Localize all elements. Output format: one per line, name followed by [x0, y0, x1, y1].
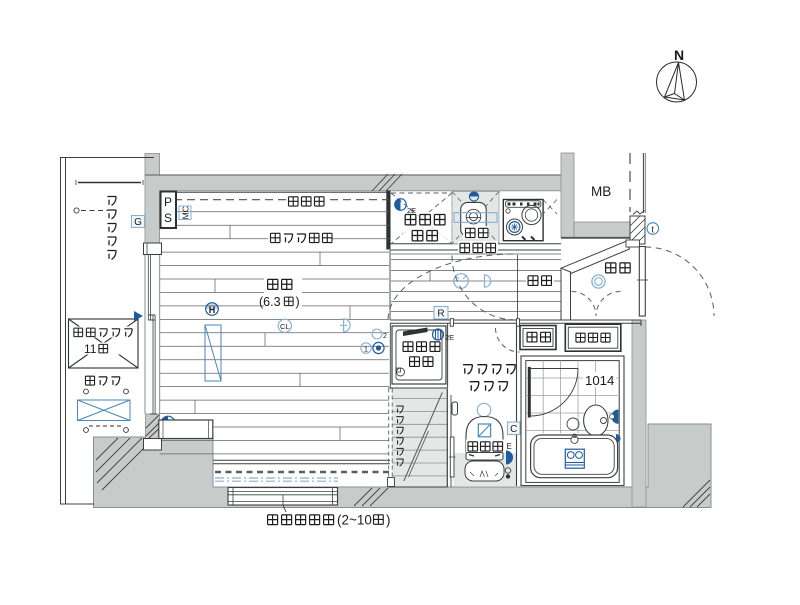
- svg-text:1: 1: [364, 345, 368, 354]
- svg-text:S: S: [164, 211, 172, 225]
- svg-text:C: C: [510, 424, 517, 435]
- svg-text:): ): [386, 513, 391, 528]
- svg-text:1014: 1014: [585, 373, 614, 388]
- svg-text:(6.3: (6.3: [259, 295, 281, 309]
- svg-text:): ): [296, 295, 300, 309]
- svg-text:MB: MB: [591, 184, 611, 199]
- svg-text:11: 11: [84, 342, 97, 356]
- svg-text:P: P: [164, 195, 172, 209]
- svg-text:G: G: [134, 217, 142, 228]
- svg-text:E: E: [507, 442, 512, 451]
- svg-text:N: N: [674, 47, 684, 63]
- svg-text:2E: 2E: [407, 206, 416, 215]
- svg-text:2: 2: [383, 333, 387, 340]
- svg-text:R: R: [437, 309, 444, 320]
- svg-text:H: H: [209, 305, 216, 315]
- svg-text:CL: CL: [280, 322, 290, 331]
- svg-text:MC: MC: [180, 206, 190, 219]
- svg-text:2E: 2E: [445, 333, 454, 342]
- svg-text:(2~10: (2~10: [337, 513, 372, 528]
